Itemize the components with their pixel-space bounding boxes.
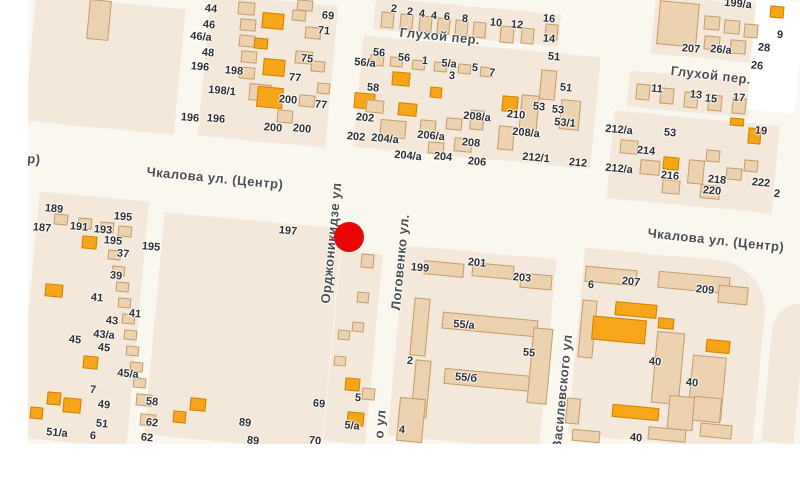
building-highlighted[interactable] <box>397 102 417 117</box>
house-number-label: 45 <box>97 341 110 354</box>
building[interactable] <box>352 321 365 332</box>
house-number-label: 41 <box>128 307 141 320</box>
building[interactable] <box>239 18 256 31</box>
house-number-label: 49 <box>97 398 110 411</box>
house-number-label: 51/а <box>46 426 68 440</box>
house-number-label: 55 <box>522 346 535 359</box>
house-number-label: 5 <box>471 62 478 75</box>
house-number-label: 220 <box>702 184 721 198</box>
house-number-label: 43/а <box>93 328 115 342</box>
building[interactable] <box>361 387 375 400</box>
house-number-label: 206 <box>467 155 486 169</box>
building[interactable] <box>635 83 650 100</box>
house-number-label: 208/а <box>512 126 541 140</box>
house-number-label: 13 <box>689 88 702 101</box>
red-location-marker[interactable] <box>334 222 364 252</box>
house-number-label: 40 <box>629 431 642 444</box>
building[interactable] <box>360 253 374 268</box>
house-number-label: 37 <box>116 247 129 260</box>
building-highlighted[interactable] <box>261 12 284 30</box>
house-number-label: 200 <box>278 93 297 107</box>
house-number-label: 208 <box>461 136 480 150</box>
house-number-label: 51 <box>547 50 560 63</box>
house-number-label: 26/а <box>710 43 732 57</box>
house-number-label: 70 <box>308 434 321 444</box>
house-number-label: 58 <box>145 395 158 408</box>
building[interactable] <box>317 82 331 94</box>
house-number-label: 204/а <box>371 132 400 146</box>
building[interactable] <box>639 159 660 176</box>
building-highlighted[interactable] <box>82 355 98 369</box>
building-highlighted[interactable] <box>391 71 410 87</box>
building-highlighted[interactable] <box>29 406 43 419</box>
building[interactable] <box>357 291 370 303</box>
building[interactable] <box>743 23 758 38</box>
house-number-label: 69 <box>312 397 325 410</box>
house-number-label: 8 <box>461 13 468 26</box>
house-number-label: 195 <box>103 234 122 248</box>
building-highlighted[interactable] <box>254 37 269 49</box>
building[interactable] <box>725 167 742 180</box>
house-number-label: 199 <box>410 261 429 275</box>
house-number-label: 77 <box>314 98 327 111</box>
house-number-label: 53 <box>532 100 545 113</box>
house-number-label: 19 <box>754 124 767 137</box>
house-number-label: 5/а <box>344 419 360 432</box>
house-number-label: 46 <box>202 18 215 31</box>
house-number-label: 206/а <box>417 129 446 143</box>
house-number-label: 16 <box>542 12 555 25</box>
house-number-label: 216 <box>660 169 679 183</box>
house-number-label: 51 <box>95 417 108 430</box>
city-block <box>762 301 800 444</box>
building-highlighted[interactable] <box>62 397 81 414</box>
building[interactable] <box>396 397 426 443</box>
building[interactable] <box>703 15 720 30</box>
house-number-label: 39 <box>109 269 122 282</box>
building-highlighted[interactable] <box>262 58 285 77</box>
house-number-label: 6 <box>89 430 96 443</box>
building-highlighted[interactable] <box>189 397 206 411</box>
building-highlighted[interactable] <box>44 283 63 298</box>
building[interactable] <box>237 1 255 16</box>
map-canvas[interactable]: 444646/а48196198198/11961966971757720077… <box>28 0 800 444</box>
house-number-label: 58 <box>366 81 379 94</box>
house-number-label: 5/а <box>441 57 457 70</box>
house-number-label: 89 <box>246 434 259 444</box>
house-number-label: 69 <box>321 9 334 22</box>
house-number-label: 4 <box>418 8 425 21</box>
building[interactable] <box>656 0 700 48</box>
street-name-label: Чкалова ул. (Центр) <box>647 225 785 254</box>
building-highlighted[interactable] <box>430 86 443 98</box>
building-highlighted[interactable] <box>769 5 784 18</box>
building[interactable] <box>705 149 720 162</box>
house-number-label: 4 <box>430 10 437 23</box>
building[interactable] <box>445 117 462 130</box>
house-number-label: 62 <box>145 416 158 429</box>
house-number-label: 203 <box>512 271 531 285</box>
building[interactable] <box>666 395 695 431</box>
house-number-label: 7 <box>89 384 96 397</box>
building-highlighted[interactable] <box>344 377 360 391</box>
house-number-label: 41 <box>90 291 103 304</box>
house-number-label: 197 <box>278 224 297 238</box>
house-number-label: 46/а <box>190 30 212 44</box>
house-number-label: 43 <box>105 314 118 327</box>
house-number-label: 198/1 <box>208 84 237 98</box>
house-number-label: 55/б <box>454 371 477 385</box>
house-number-label: 40 <box>685 376 698 389</box>
house-number-label: 189 <box>44 202 63 216</box>
house-number-label: 12 <box>510 18 523 31</box>
house-number-label: 198 <box>224 64 243 78</box>
house-number-label: 2 <box>773 188 780 201</box>
house-number-label: 56 <box>397 51 410 64</box>
house-number-label: 212 <box>568 156 587 170</box>
house-number-label: 89 <box>238 416 251 429</box>
house-number-label: 48 <box>201 46 214 59</box>
house-number-label: 2 <box>390 3 397 16</box>
house-number-label: 207 <box>681 42 700 56</box>
house-number-label: 3 <box>448 70 455 83</box>
house-number-label: 222 <box>751 176 770 190</box>
house-number-label: 17 <box>732 91 745 104</box>
house-number-label: 1 <box>421 55 428 68</box>
building[interactable] <box>334 355 347 366</box>
house-number-label: 209 <box>695 283 714 297</box>
house-number-label: 7 <box>488 67 495 80</box>
building-highlighted[interactable] <box>658 317 675 329</box>
building[interactable] <box>692 396 722 423</box>
house-number-label: 196 <box>206 112 225 126</box>
street-name-label: р) <box>28 151 41 167</box>
house-number-label: 75 <box>300 52 313 65</box>
house-number-label: 45 <box>68 333 81 346</box>
building[interactable] <box>338 329 351 340</box>
house-number-label: 195 <box>141 240 160 254</box>
house-number-label: 6 <box>443 11 450 24</box>
house-number-label: 51 <box>559 81 572 94</box>
house-number-label: 212/а <box>605 123 634 137</box>
map-screenshot: 444646/а48196198198/11961966971757720077… <box>0 0 800 499</box>
house-number-label: 26 <box>750 59 763 72</box>
house-number-label: 195 <box>113 210 132 224</box>
house-number-label: 204/а <box>394 149 423 163</box>
house-number-label: 71 <box>317 24 330 37</box>
street-name-label: о ул <box>371 409 389 439</box>
building[interactable] <box>699 423 732 440</box>
house-number-label: 5 <box>354 392 361 405</box>
house-number-label: 202 <box>355 111 374 125</box>
house-number-label: 196 <box>190 60 209 74</box>
building-highlighted[interactable] <box>172 410 186 423</box>
building[interactable] <box>292 9 307 21</box>
house-number-label: 14 <box>542 32 555 45</box>
house-number-label: 53 <box>551 103 564 116</box>
house-number-label: 44 <box>204 2 217 15</box>
house-number-label: 200 <box>263 121 282 135</box>
building[interactable] <box>687 159 705 184</box>
house-number-label: 53 <box>663 126 676 139</box>
building[interactable] <box>298 94 315 107</box>
building[interactable] <box>126 345 140 356</box>
house-number-label: 15 <box>704 92 717 105</box>
building[interactable] <box>458 63 472 74</box>
house-number-label: 62 <box>140 431 153 444</box>
house-number-label: 210 <box>506 108 525 122</box>
building-highlighted[interactable] <box>730 117 745 126</box>
building[interactable] <box>539 69 558 100</box>
building[interactable] <box>572 429 601 444</box>
house-number-label: 45/а <box>117 367 139 381</box>
house-number-label: 214 <box>636 144 655 158</box>
house-number-label: 9 <box>776 29 783 42</box>
house-number-label: 201 <box>467 256 486 270</box>
street-name-label: Чкалова ул. (Центр) <box>146 164 284 192</box>
building-highlighted[interactable] <box>81 235 97 249</box>
house-number-label: 202 <box>346 130 365 144</box>
building-highlighted[interactable] <box>46 391 61 405</box>
house-number-label: 40 <box>648 355 661 368</box>
house-number-label: 196 <box>180 111 199 125</box>
house-number-label: 191 <box>69 220 88 234</box>
house-number-label: 187 <box>32 221 51 235</box>
house-number-label: 204 <box>433 150 452 164</box>
building[interactable] <box>116 281 130 292</box>
house-number-label: 212/1 <box>522 151 551 165</box>
building[interactable] <box>717 285 749 306</box>
house-number-label: 10 <box>489 16 502 29</box>
house-number-label: 28 <box>757 41 770 54</box>
house-number-label: 2 <box>406 355 413 368</box>
house-number-label: 55/а <box>453 318 475 332</box>
house-number-label: 207 <box>621 275 640 289</box>
building[interactable] <box>240 50 257 63</box>
house-number-label: 4 <box>398 424 405 437</box>
house-number-label: 56/а <box>354 56 376 70</box>
building[interactable] <box>723 19 740 34</box>
building-highlighted[interactable] <box>591 316 647 345</box>
building[interactable] <box>743 159 758 172</box>
building-highlighted[interactable] <box>705 339 730 354</box>
house-number-label: 212/а <box>605 162 634 176</box>
house-number-label: 11 <box>651 82 664 95</box>
house-number-label: 200 <box>292 122 311 136</box>
house-number-label: 208/а <box>463 110 492 124</box>
house-number-label: 2 <box>406 6 413 19</box>
house-number-label: 53/1 <box>554 116 576 130</box>
building[interactable] <box>124 329 138 340</box>
house-number-label: 77 <box>288 71 301 84</box>
house-number-label: 6 <box>587 279 594 292</box>
building[interactable] <box>86 0 112 41</box>
